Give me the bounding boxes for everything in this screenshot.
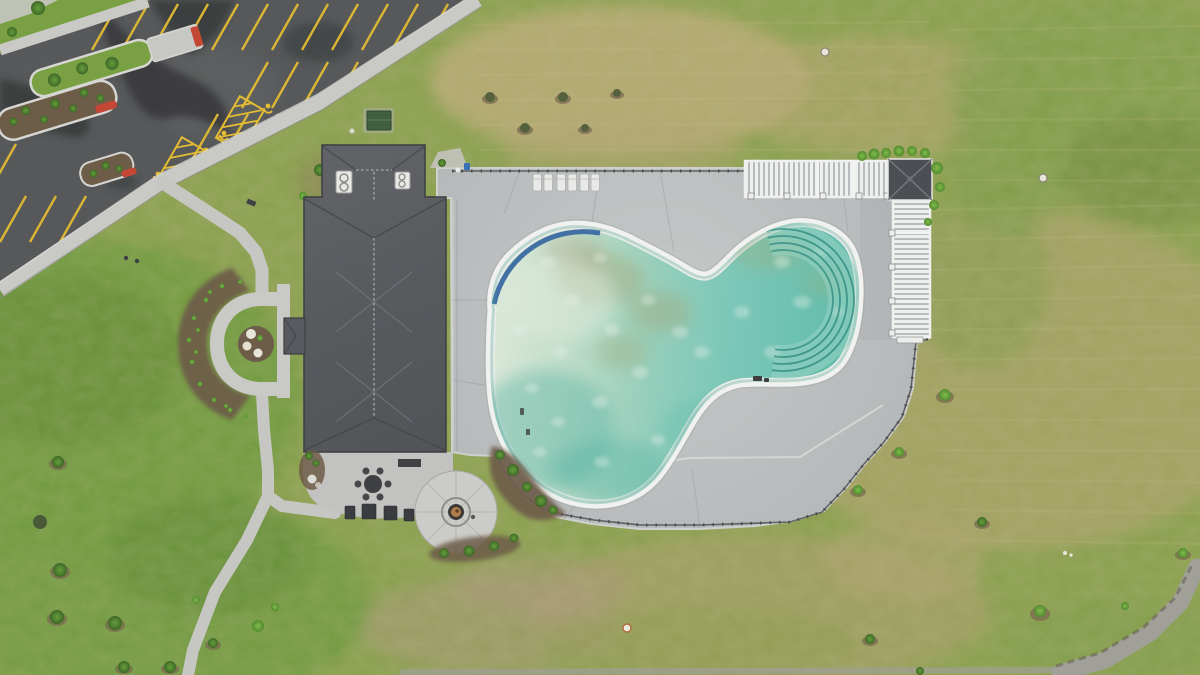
patio-table [364,475,382,493]
lounge-chair [591,174,600,191]
lounge-chair [533,174,542,191]
doormat [398,459,421,467]
aerial-photo [0,0,1200,675]
lounge-chair [580,174,589,191]
lounge-chair [544,174,553,191]
lounge-chair [557,174,566,191]
lounge-chair [568,174,577,191]
pergola-top [745,161,891,199]
horseshoe-island [238,326,274,362]
pavilion [888,159,932,200]
cooler [464,163,470,170]
aerial-photo-canvas [0,0,1200,675]
garden-shed [363,108,394,133]
pergola-right [889,199,930,343]
white-ornament [308,475,317,484]
bench [897,337,923,343]
